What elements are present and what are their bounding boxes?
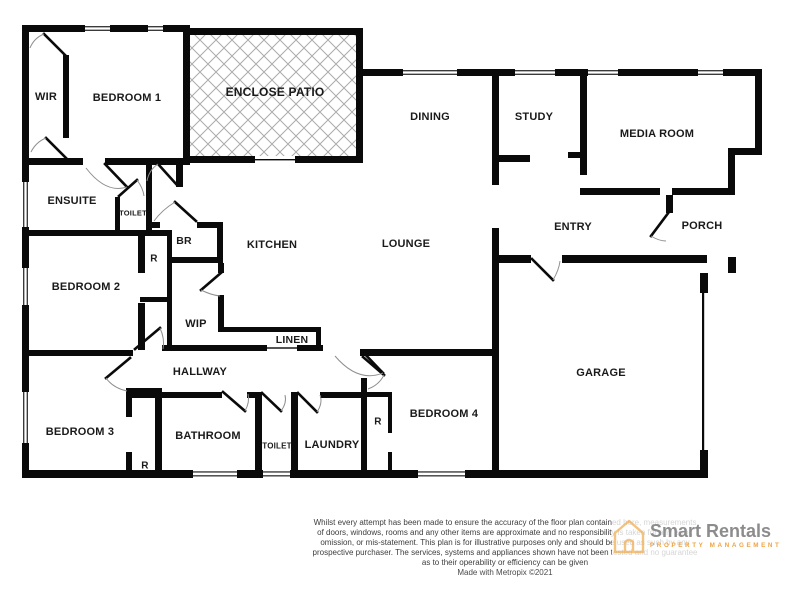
- house-icon: [612, 517, 646, 555]
- floorplan-page: WIRBEDROOM 1ENCLOSE PATIODININGSTUDYMEDI…: [0, 0, 800, 600]
- room-label-bathroom: BATHROOM: [175, 430, 241, 442]
- room-label-kitchen: KITCHEN: [247, 239, 297, 251]
- room-label-bedroom-4: BEDROOM 4: [410, 408, 478, 420]
- room-label-wip: WIP: [185, 318, 206, 330]
- room-label-br: BR: [176, 235, 192, 247]
- room-label-wir: WIR: [35, 91, 57, 103]
- room-label-laundry: LAUNDRY: [305, 439, 360, 451]
- room-label-toilet-main: TOILET: [262, 442, 292, 451]
- room-label-ensuite: ENSUITE: [47, 195, 96, 207]
- room-label-robe-bed2: R: [150, 254, 157, 265]
- room-label-porch: PORCH: [682, 220, 723, 232]
- room-label-robe-bed3: R: [141, 461, 148, 472]
- logo-brand: Smart Rentals: [650, 522, 782, 540]
- room-label-bedroom-1: BEDROOM 1: [93, 92, 161, 104]
- room-label-bedroom-2: BEDROOM 2: [52, 281, 120, 293]
- room-label-media-room: MEDIA ROOM: [620, 128, 694, 140]
- room-label-linen: LINEN: [276, 334, 309, 346]
- room-label-entry: ENTRY: [554, 221, 592, 233]
- room-label-hallway: HALLWAY: [173, 366, 227, 378]
- logo-text: Smart Rentals PROPERTY MANAGEMENT: [650, 522, 782, 549]
- room-label-lounge: LOUNGE: [382, 238, 430, 250]
- room-label-dining: DINING: [410, 111, 450, 123]
- room-label-toilet-ensuite: TOILET: [119, 209, 147, 218]
- room-label-robe-bed4: R: [374, 417, 381, 428]
- room-label-garage: GARAGE: [576, 367, 625, 379]
- room-labels-layer: WIRBEDROOM 1ENCLOSE PATIODININGSTUDYMEDI…: [0, 0, 800, 600]
- logo-tagline: PROPERTY MANAGEMENT: [650, 543, 782, 549]
- smart-rentals-logo: Smart Rentals PROPERTY MANAGEMENT: [612, 512, 800, 560]
- room-label-study: STUDY: [515, 111, 553, 123]
- metropix-credit: Made with Metropix ©2021: [295, 568, 715, 578]
- room-label-enclose-patio: ENCLOSE PATIO: [226, 85, 325, 99]
- room-label-bedroom-3: BEDROOM 3: [46, 426, 114, 438]
